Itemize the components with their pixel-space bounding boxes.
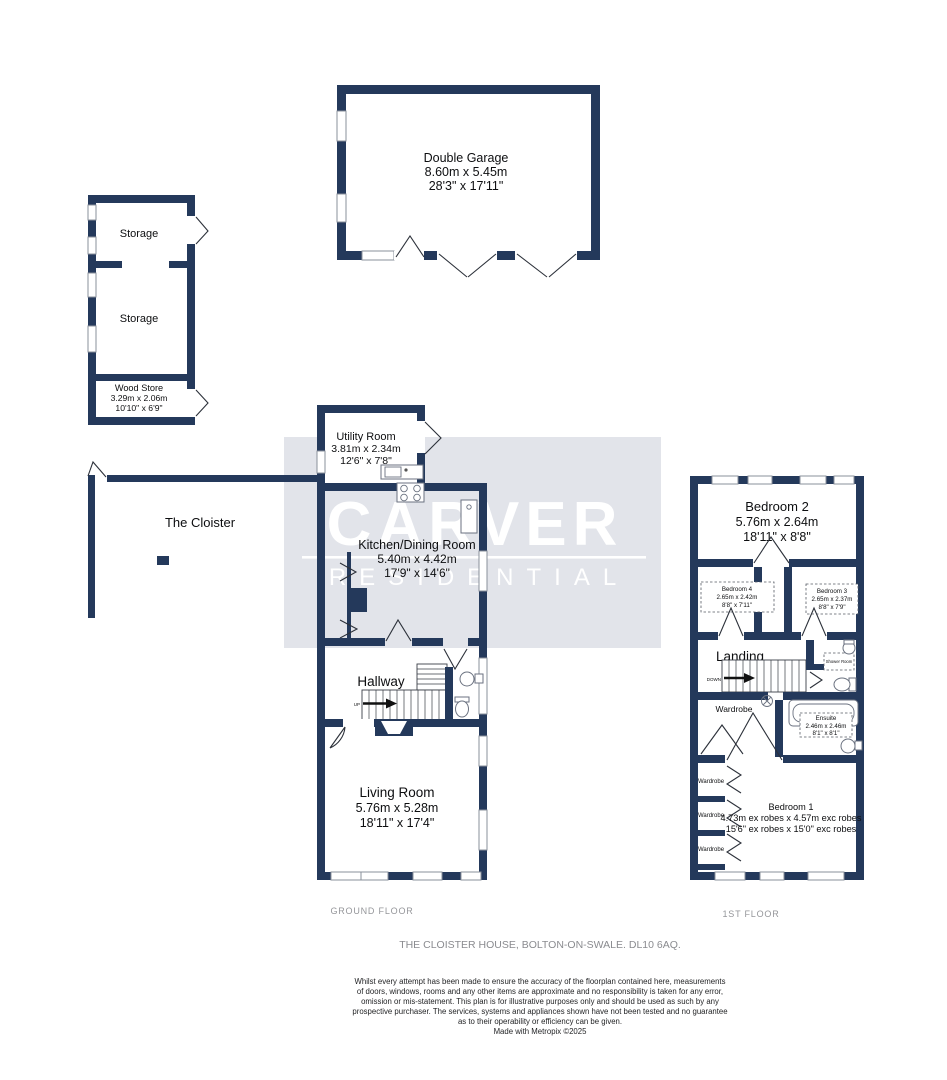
door-swing [701,725,743,754]
wall [88,195,195,203]
room-imperial: 18'11" x 8'8" [743,530,811,544]
window [337,111,346,141]
room-name: The Cloister [165,515,236,530]
room-name: Ensuite [816,715,837,722]
wall [806,664,824,670]
room-metric: 5.76m x 5.28m [356,801,439,815]
window [715,872,745,880]
room-name: Hallway [357,674,405,689]
wall [88,475,95,618]
garage-door-opening [437,251,497,260]
room-metric: 2.46m x 2.46m [806,723,847,730]
room-imperial: 8'8" x 7'11" [722,602,752,609]
pillar [157,556,169,565]
room-name: Bedroom 2 [745,499,809,514]
metropix-credit: Made with Metropix ©2025 [494,1027,588,1036]
bifold-door [727,834,741,861]
window [88,273,96,297]
door-opening [753,559,789,567]
room-name: Storage [120,228,159,240]
wall [96,374,187,381]
door-swing [196,390,208,416]
outbuilding-plan: Storage Storage Wood Store 3.29m x 2.06m… [88,195,208,425]
window [88,205,96,220]
window [361,872,388,880]
wall [317,483,325,880]
address-line: THE CLOISTER HOUSE, BOLTON-ON-SWALE. DL1… [399,939,681,951]
window [337,194,346,222]
window [808,872,844,880]
window [362,251,394,260]
window [479,658,487,714]
disclaimer-line: as to their operability or efficiency ca… [458,1017,622,1026]
room-metric: 3.81m x 2.34m [331,443,401,455]
wall [784,567,792,632]
window [479,736,487,766]
wall [317,405,325,491]
room-name: Kitchen/Dining Room [358,538,475,552]
door-opening [187,389,195,417]
room-imperial: 17'9" x 14'6" [384,566,450,580]
disclaimer-line: prospective purchaser. The services, sys… [352,1007,727,1016]
wall [698,830,725,836]
wall [783,692,864,700]
wall [690,755,725,763]
window [479,810,487,850]
room-imperial: 15'6" ex robes x 15'0" exc robes [726,824,857,834]
door-opening [187,216,195,244]
wall [96,261,122,268]
room-name: Double Garage [424,151,509,165]
stairs-upper-flight [417,664,447,690]
wall [317,405,425,413]
floorplan-canvas: CARVER RESIDENTIAL Double Garage 8.60m x… [0,0,947,1080]
window [800,476,826,484]
garage-door-opening [515,251,577,260]
wall [107,475,317,482]
room-metric: 5.40m x 4.42m [377,552,456,566]
room-imperial: 8'1" x 8'1" [812,730,839,737]
room-name: Wardrobe [715,704,752,714]
window [748,476,772,484]
door-swing [444,649,467,669]
wall [337,85,600,94]
window [834,476,854,484]
wall [445,667,453,719]
door-swing [196,217,208,244]
room-imperial: 10'10" x 6'9" [115,403,162,413]
ground-floor-caption: GROUND FLOOR [330,906,413,916]
room-name: Shower Room [826,659,853,664]
room-name: Utility Room [336,431,395,443]
room-imperial: 18'11" x 17'4" [360,816,435,830]
wall [690,692,768,700]
room-metric: 3.29m x 2.06m [111,393,168,403]
window [331,872,361,880]
wall [698,864,725,870]
room-name: Storage [120,313,159,325]
room-metric: 8.60m x 5.45m [425,165,508,179]
first-floor-caption: 1ST FLOOR [722,909,779,919]
watermark-divider [302,556,646,559]
ensuite-basin [841,739,855,753]
room-name: Wood Store [115,383,163,393]
door-opening [385,638,412,646]
door-opening [343,719,374,727]
room-name: Bedroom 4 [722,586,753,593]
disclaimer-line: omission or mis-statement. This plan is … [361,997,719,1006]
wall [591,85,600,260]
room-metric: 5.76m x 2.64m [736,515,819,529]
door-swing [330,727,345,748]
door-opening [417,421,425,453]
toilet [834,678,850,691]
window [461,872,481,880]
wc-basin [460,672,474,686]
room-metric: 4.73m ex robes x 4.57m exc robes [721,813,862,823]
toilet [456,701,469,717]
window [712,476,738,484]
wall [88,417,195,425]
tap-icon [404,468,407,471]
garage-plan: Double Garage 8.60m x 5.45m 28'3" x 17'1… [337,85,600,277]
room-imperial: 8'8" x 7'9" [818,604,845,611]
wardrobe-label: Wardrobe [698,847,725,853]
stairs-down-label: DOWN [707,677,721,682]
wall [88,195,96,425]
window [88,326,96,352]
room-metric: 2.65m x 2.42m [717,594,758,601]
room-name: Bedroom 1 [769,802,814,812]
first-floor-plan: Bedroom 2 5.76m x 2.64m 18'11" x 8'8" Be… [690,476,864,880]
wc-basin-mount [475,674,483,683]
room-metric: 2.65m x 2.37m [812,596,853,603]
bifold-door [727,766,741,793]
stairs-lower-flight [362,690,447,720]
door-opening [718,632,744,640]
disclaimer-line: Whilst every attempt has been made to en… [355,977,726,986]
wall [690,476,698,880]
door-swing [810,672,822,688]
wardrobe-label: Wardrobe [698,779,725,785]
door-opening [443,638,468,646]
room-name: Bedroom 3 [817,588,848,595]
ensuite-basin-mount [855,741,862,750]
chimney-breast [350,588,367,612]
wall [698,796,725,802]
room-name: Living Room [359,785,434,800]
wall [775,700,783,757]
window [760,872,784,880]
wall [169,261,187,268]
stairs-up-label: UP [354,702,360,707]
wall [690,632,864,640]
window [479,551,487,591]
door-swing [727,713,782,760]
wall [783,755,864,763]
window [88,237,96,254]
door-swing [88,462,106,477]
floorplan-page: CARVER RESIDENTIAL Double Garage 8.60m x… [0,0,947,1080]
door-opening [801,632,827,640]
room-imperial: 28'3" x 17'11" [429,179,504,193]
window [317,451,325,473]
disclaimer-line: of doors, windows, rooms and any other i… [357,987,723,996]
window [413,872,442,880]
shower-basin-mount [844,640,854,644]
captions: GROUND FLOOR 1ST FLOOR THE CLOISTER HOUS… [330,906,779,1036]
